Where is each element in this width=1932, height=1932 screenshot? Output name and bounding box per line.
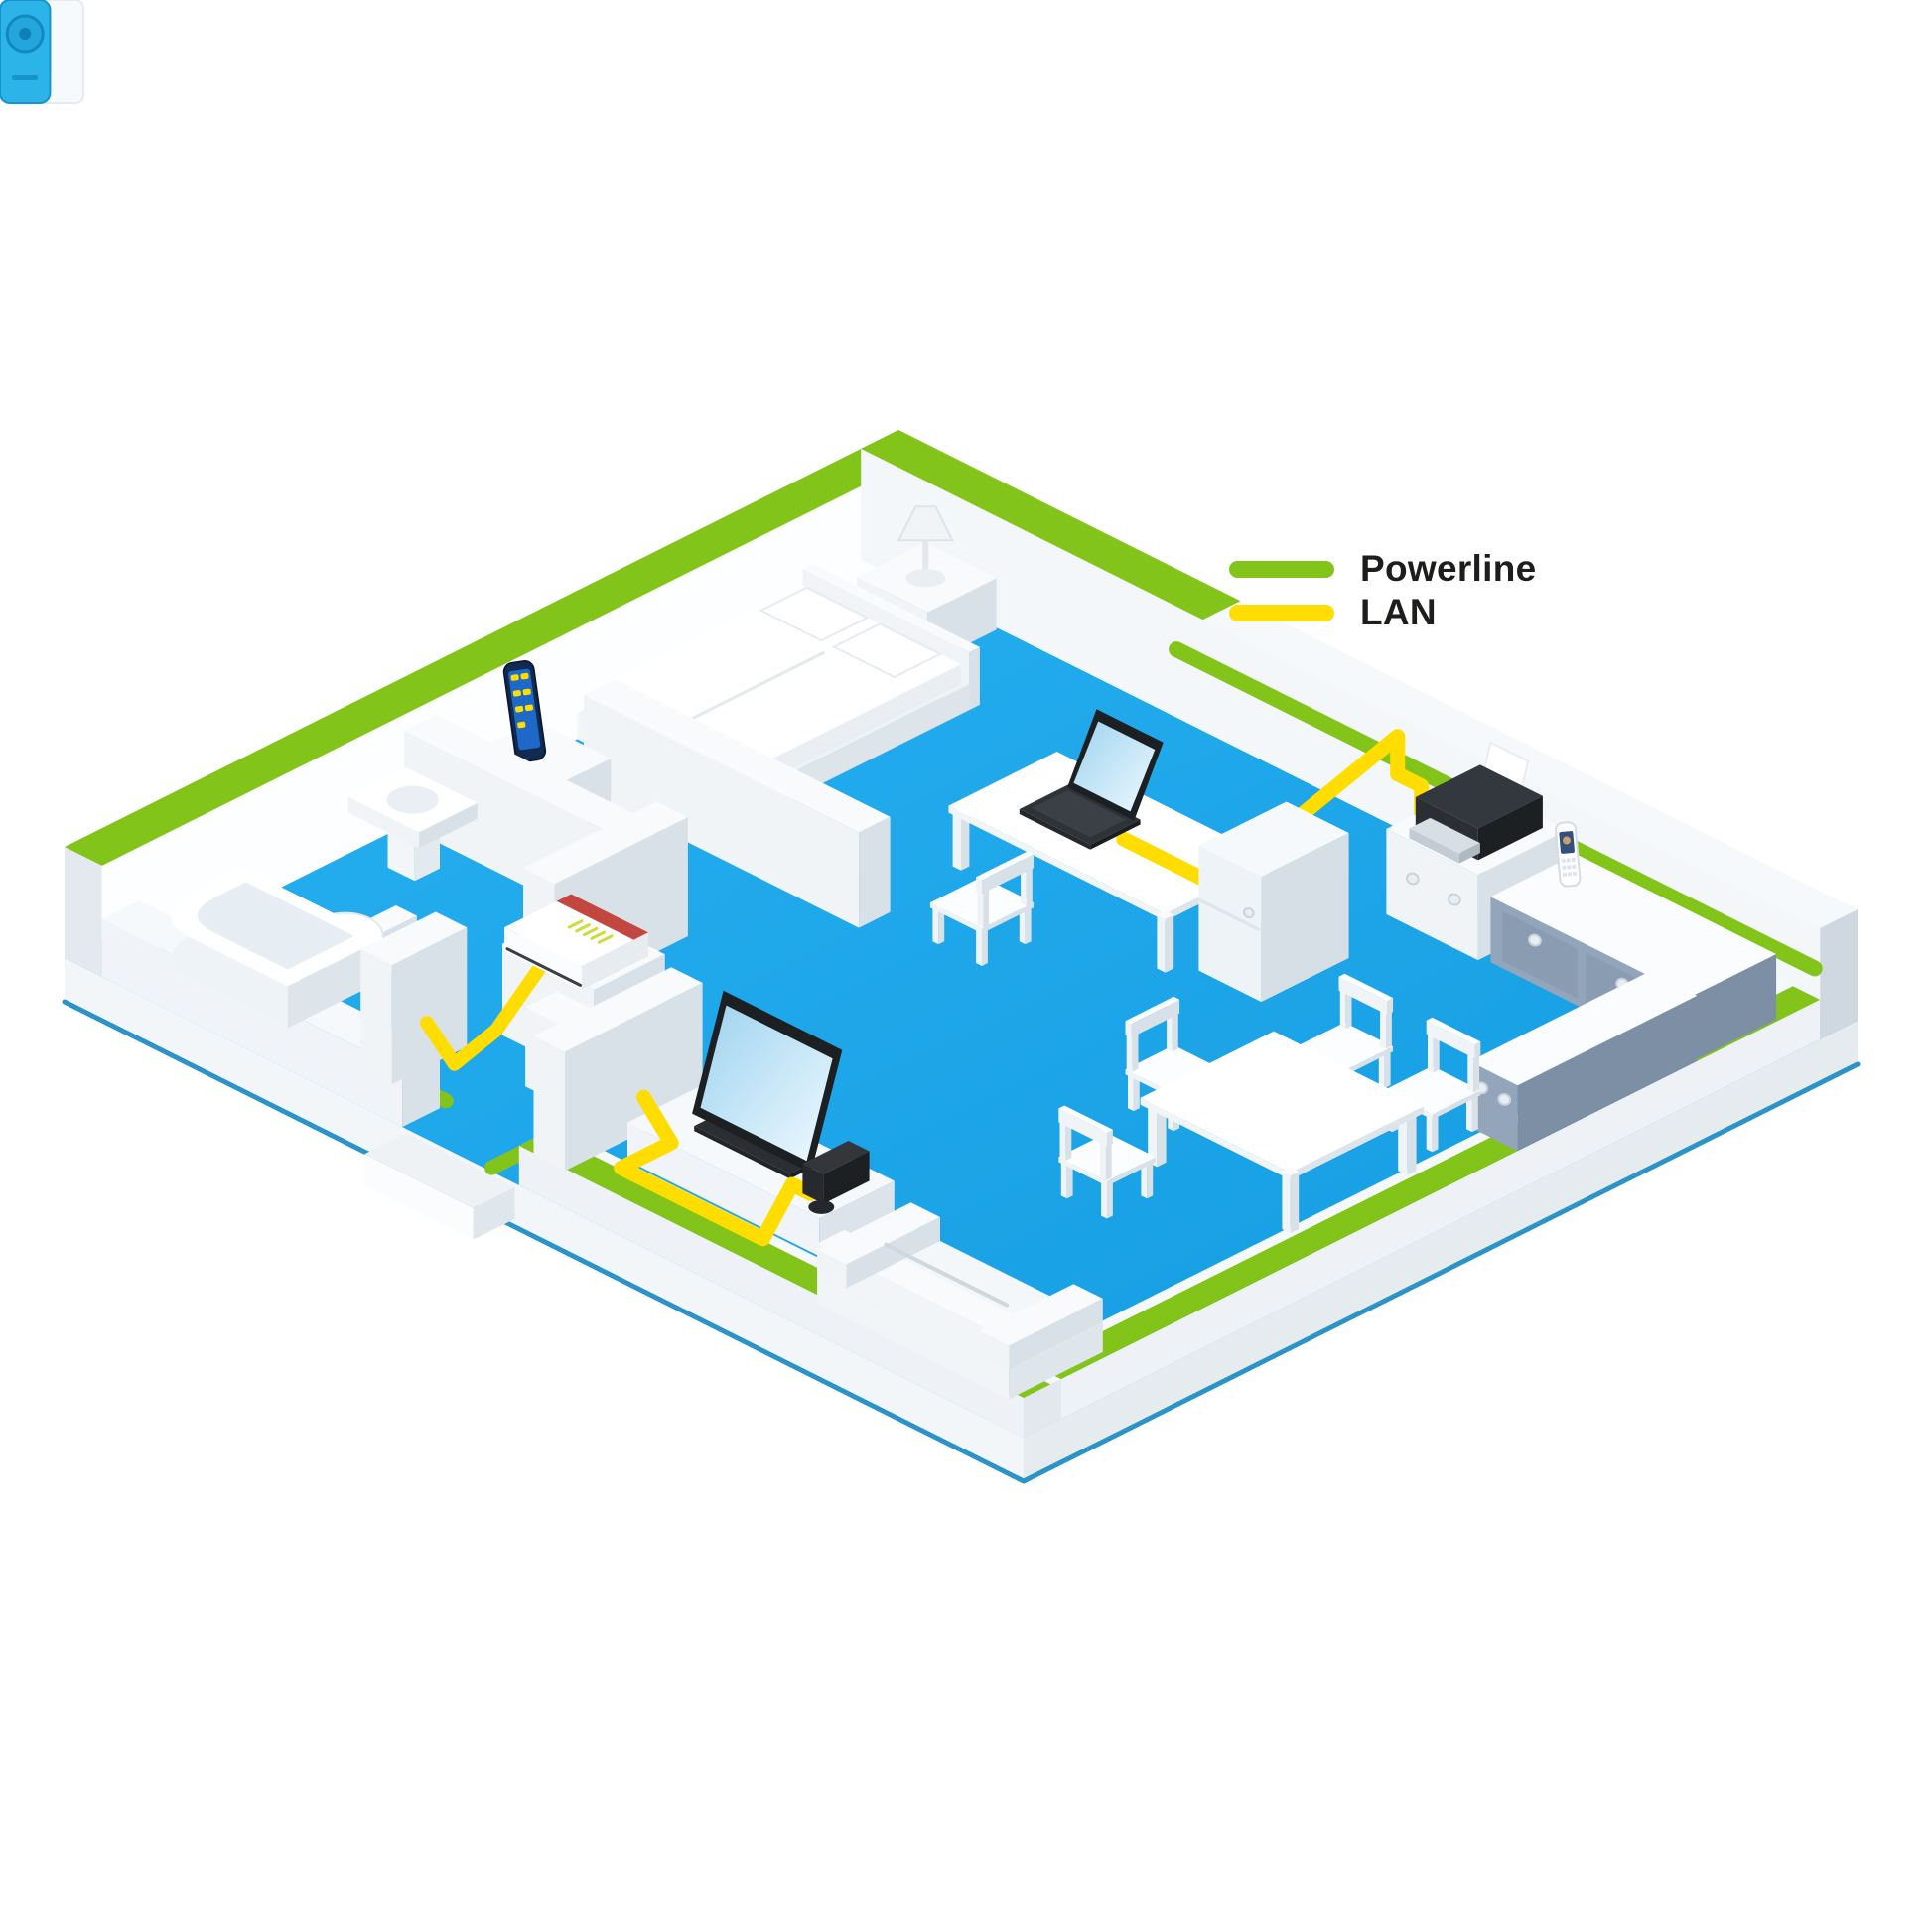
dining-chair-2-leg3-front xyxy=(1427,1115,1433,1152)
dining-chair-2-leg3-side xyxy=(1433,1115,1439,1152)
desk-leg3-front xyxy=(1157,915,1165,973)
cordless-phone-key xyxy=(1562,859,1566,863)
office-chair-leg3-front xyxy=(976,929,982,966)
smartphone-app-icon-6 xyxy=(517,722,526,729)
adapter-living-socket-hole xyxy=(19,28,31,40)
dining-table-leg3-side xyxy=(1291,1172,1299,1233)
cordless-phone-key xyxy=(1573,872,1577,876)
desk-leg2-front xyxy=(953,813,961,871)
powerline-color-swatch xyxy=(1229,561,1334,578)
dining-chair-4-leg1-side xyxy=(1147,1162,1153,1198)
smartphone-app-icon-3 xyxy=(522,688,531,695)
dining-chair-3-leg2-front xyxy=(1128,1074,1134,1111)
legend: Powerline LAN xyxy=(1229,549,1536,632)
legend-label-powerline: Powerline xyxy=(1360,549,1536,589)
smartphone-app-icon-5 xyxy=(525,704,534,711)
legend-label-lan: LAN xyxy=(1360,593,1437,632)
lan-color-swatch xyxy=(1229,605,1334,621)
cordless-phone-key xyxy=(1572,858,1576,862)
cordless-phone-key xyxy=(1567,865,1571,869)
desk-leg3-side xyxy=(1166,915,1173,973)
cordless-phone-key xyxy=(1563,873,1567,877)
gamepad xyxy=(808,1200,834,1214)
smartphone-app-icon-0 xyxy=(510,674,519,681)
cordless-phone xyxy=(1555,822,1581,887)
wall-nw-front xyxy=(65,847,102,977)
legend-item-lan: LAN xyxy=(1229,593,1536,632)
dining-chair-1-leg1-side xyxy=(1385,1051,1391,1088)
wall-bedroom-divider-side xyxy=(859,817,891,928)
wall-ne-side xyxy=(1820,909,1858,1039)
dining-chair-4-leg2-front xyxy=(1061,1162,1067,1198)
office-chair-leg1-side xyxy=(1026,907,1032,944)
cordless-phone-key xyxy=(1572,865,1576,869)
powerline-adapter-living xyxy=(0,0,50,103)
lamp-base xyxy=(905,569,945,587)
cordless-phone-key xyxy=(1562,866,1566,870)
wall-tv-front xyxy=(534,1036,566,1172)
sink-bowl xyxy=(387,786,439,814)
legend-item-powerline: Powerline xyxy=(1229,549,1536,589)
dining-chair-4-leg3-side xyxy=(1107,1182,1113,1219)
wall-hall-stub-front xyxy=(360,949,392,1084)
dining-table-leg3-front xyxy=(1282,1172,1290,1233)
smartphone-app-icon-2 xyxy=(512,690,521,697)
dining-chair-2-backrest-side xyxy=(1474,1041,1480,1058)
cordless-phone-key xyxy=(1567,858,1571,862)
office-chair-leg3-side xyxy=(982,929,988,966)
dining-table-leg1-side xyxy=(1407,1113,1416,1175)
office-chair-leg2-front xyxy=(932,907,938,944)
cordless-phone-key xyxy=(1568,872,1572,876)
smartphone-app-icon-4 xyxy=(515,706,524,713)
apartment-network-illustration xyxy=(0,0,1932,1932)
adapter-living-label xyxy=(12,75,38,80)
dining-chair-3-backrest-front xyxy=(1126,1021,1132,1037)
office-chair-backrest-front xyxy=(976,877,982,894)
dining-chair-2-leg1-side xyxy=(1472,1095,1478,1132)
dining-chair-4-leg3-front xyxy=(1101,1182,1107,1219)
dining-chair-4-backrest-side xyxy=(1107,1130,1113,1147)
dining-chair-1-backrest-side xyxy=(1387,998,1393,1015)
bed-headboard-side xyxy=(969,647,980,710)
smartphone-app-icon-1 xyxy=(520,673,529,680)
